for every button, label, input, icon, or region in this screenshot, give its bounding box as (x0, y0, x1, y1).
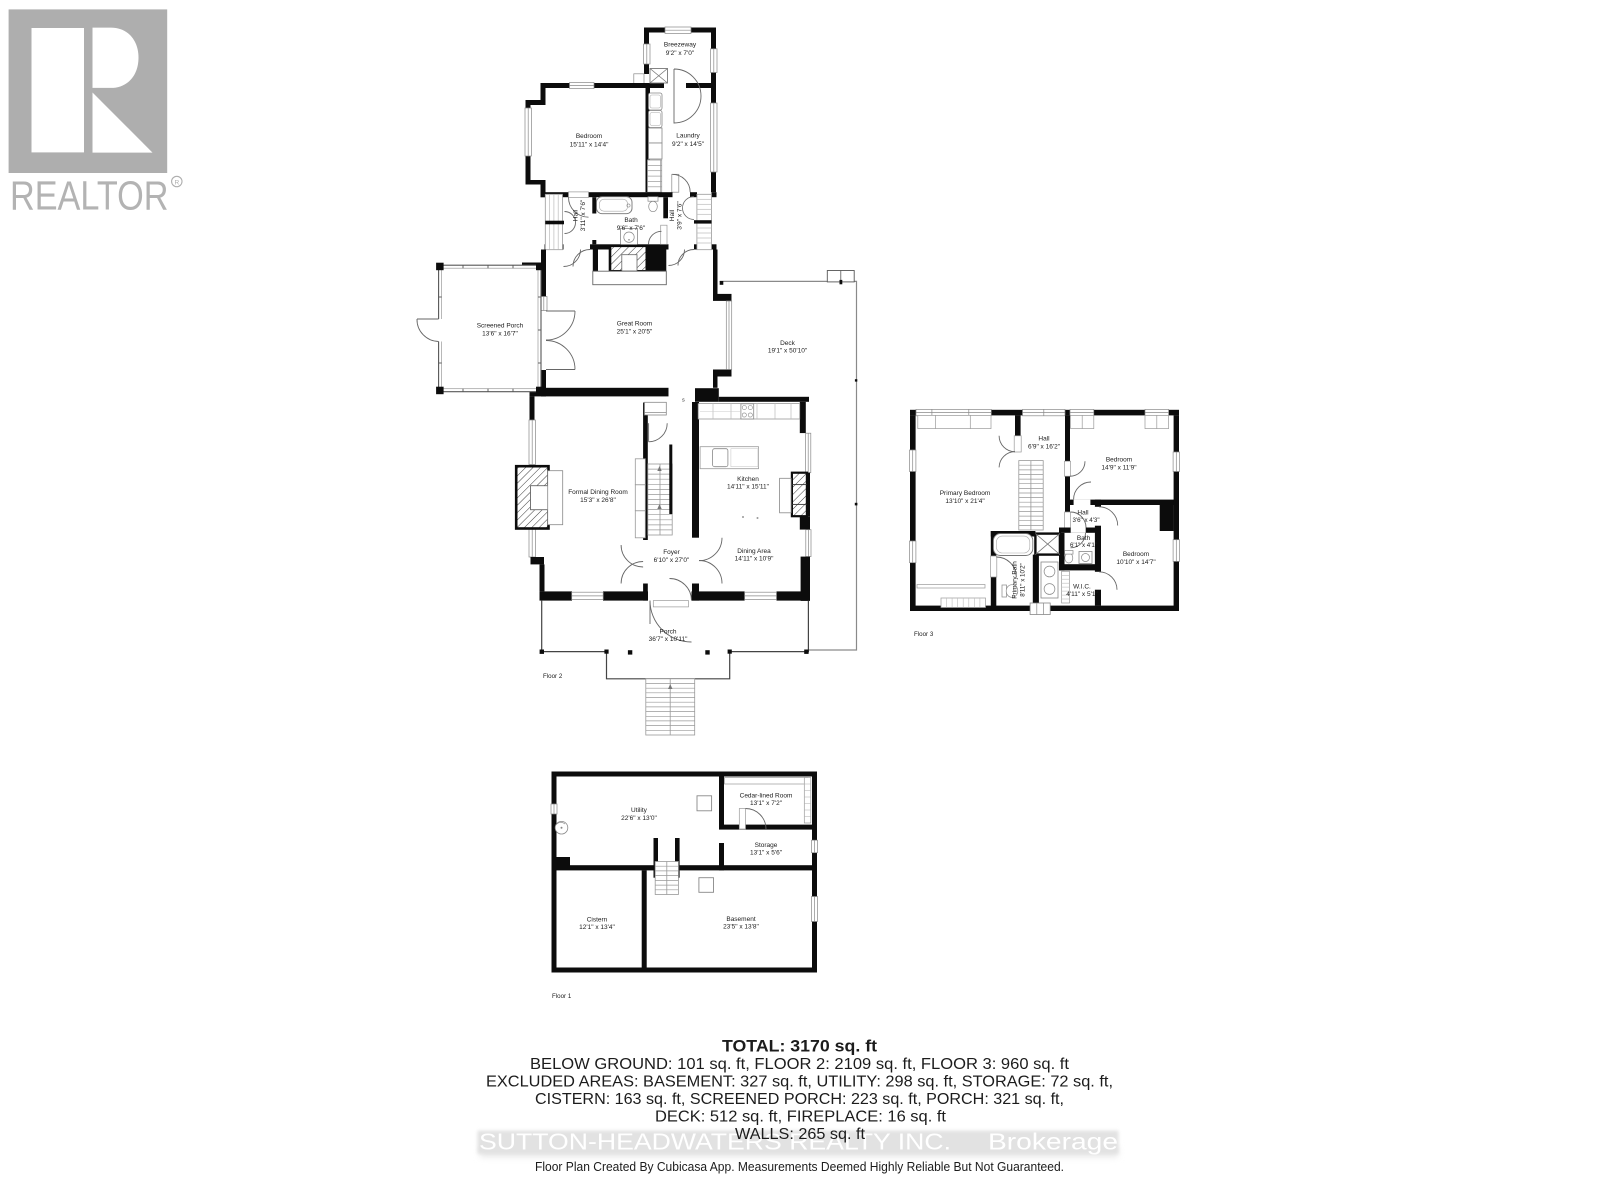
svg-text:Hall: Hall (1077, 510, 1089, 517)
svg-text:15'11" x 14'4": 15'11" x 14'4" (570, 142, 609, 149)
svg-text:Floor 3: Floor 3 (914, 631, 934, 638)
svg-text:Breezeway: Breezeway (664, 42, 697, 49)
svg-text:Porch: Porch (660, 629, 677, 636)
svg-text:CISTERN: 163 sq. ft, SCREENED: CISTERN: 163 sq. ft, SCREENED PORCH: 223… (535, 1091, 1064, 1108)
svg-text:4'11" x 5'1": 4'11" x 5'1" (1066, 591, 1098, 598)
svg-text:8'11" x 10'2": 8'11" x 10'2" (1020, 563, 1027, 596)
svg-text:Storage: Storage (755, 842, 778, 849)
svg-text:Dining Area: Dining Area (737, 548, 771, 555)
svg-text:R: R (174, 179, 179, 186)
svg-text:Brokerage: Brokerage (988, 1129, 1118, 1155)
svg-text:WALLS: 265 sq. ft: WALLS: 265 sq. ft (735, 1126, 866, 1143)
svg-text:25'1" x 20'5": 25'1" x 20'5" (617, 329, 653, 336)
svg-text:TOTAL: 3170 sq. ft: TOTAL: 3170 sq. ft (722, 1037, 878, 1055)
svg-text:EXCLUDED AREAS: BASEMENT: 327: EXCLUDED AREAS: BASEMENT: 327 sq. ft, UT… (486, 1074, 1113, 1091)
svg-text:Foyer: Foyer (663, 549, 680, 556)
svg-text:22'6" x 13'0": 22'6" x 13'0" (621, 815, 657, 822)
svg-text:BELOW GROUND: 101 sq. ft, FLOO: BELOW GROUND: 101 sq. ft, FLOOR 2: 2109 … (530, 1056, 1070, 1073)
svg-text:Laundry: Laundry (676, 133, 700, 140)
svg-text:Hall: Hall (573, 209, 580, 221)
svg-text:Great Room: Great Room (617, 321, 652, 328)
svg-text:Bedroom: Bedroom (1106, 457, 1132, 464)
svg-text:Basement: Basement (726, 916, 755, 923)
svg-text:W.I.C.: W.I.C. (1073, 584, 1091, 591)
svg-text:Utility: Utility (631, 807, 648, 814)
svg-text:3'6" x 4'3": 3'6" x 4'3" (1072, 517, 1099, 524)
svg-text:Floor Plan Created By Cubicasa: Floor Plan Created By Cubicasa App. Meas… (535, 1160, 1064, 1174)
svg-text:Primary Bath: Primary Bath (1012, 561, 1019, 599)
svg-text:6'10" x 27'0": 6'10" x 27'0" (654, 557, 690, 564)
svg-text:13'6" x 16'7": 13'6" x 16'7" (482, 331, 518, 338)
svg-text:Kitchen: Kitchen (737, 476, 759, 483)
svg-text:14'11" x 15'11": 14'11" x 15'11" (727, 484, 770, 491)
svg-text:15'3" x 26'8": 15'3" x 26'8" (580, 497, 616, 504)
svg-text:SUTTON-HEADWATERS REALTY INC.: SUTTON-HEADWATERS REALTY INC. (479, 1129, 951, 1155)
svg-text:Cedar-lined Room: Cedar-lined Room (740, 793, 793, 800)
svg-text:Cistern: Cistern (587, 917, 608, 924)
svg-text:14'9" x 11'9": 14'9" x 11'9" (1101, 465, 1137, 472)
svg-text:Deck: Deck (780, 340, 796, 347)
svg-text:Screened Porch: Screened Porch (477, 323, 524, 330)
svg-text:9'2" x 7'0": 9'2" x 7'0" (666, 50, 695, 57)
svg-text:23'5" x 13'8": 23'5" x 13'8" (723, 924, 759, 931)
svg-text:DECK: 512 sq. ft, FIREPLACE: 1: DECK: 512 sq. ft, FIREPLACE: 16 sq. ft (655, 1109, 947, 1126)
svg-text:3'11" x 7'6": 3'11" x 7'6" (580, 199, 587, 231)
svg-text:13'1" x 5'6": 13'1" x 5'6" (750, 850, 783, 857)
svg-text:12'1" x 13'4": 12'1" x 13'4" (579, 924, 615, 931)
svg-text:Bath: Bath (624, 217, 638, 224)
svg-text:Floor 1: Floor 1 (552, 993, 572, 1000)
svg-text:REALTOR: REALTOR (10, 173, 169, 219)
svg-text:14'11" x 10'9": 14'11" x 10'9" (735, 556, 774, 563)
svg-text:Hall: Hall (669, 209, 676, 221)
svg-text:19'1" x 50'10": 19'1" x 50'10" (768, 348, 808, 355)
svg-text:Floor 2: Floor 2 (543, 673, 563, 680)
svg-text:s: s (682, 398, 685, 404)
svg-text:Hall: Hall (1038, 436, 1050, 443)
svg-text:13'1" x 7'2": 13'1" x 7'2" (750, 800, 783, 807)
svg-text:Primary Bedroom: Primary Bedroom (940, 490, 991, 497)
svg-text:13'10" x 21'4": 13'10" x 21'4" (945, 498, 985, 505)
svg-text:6'9" x 16'2": 6'9" x 16'2" (1028, 444, 1061, 451)
svg-text:36'7" x 10'11": 36'7" x 10'11" (649, 636, 688, 643)
svg-text:Bedroom: Bedroom (576, 133, 602, 140)
svg-text:6'1" x 4'1": 6'1" x 4'1" (1070, 542, 1097, 549)
svg-text:9'2" x 14'5": 9'2" x 14'5" (672, 141, 705, 148)
svg-text:3'9" x 7'6": 3'9" x 7'6" (677, 201, 684, 230)
svg-text:10'10" x 14'7": 10'10" x 14'7" (1116, 559, 1156, 566)
svg-text:Bedroom: Bedroom (1123, 551, 1149, 558)
svg-text:Formal Dining Room: Formal Dining Room (568, 489, 628, 496)
svg-text:9'6" x 7'6": 9'6" x 7'6" (617, 225, 646, 232)
